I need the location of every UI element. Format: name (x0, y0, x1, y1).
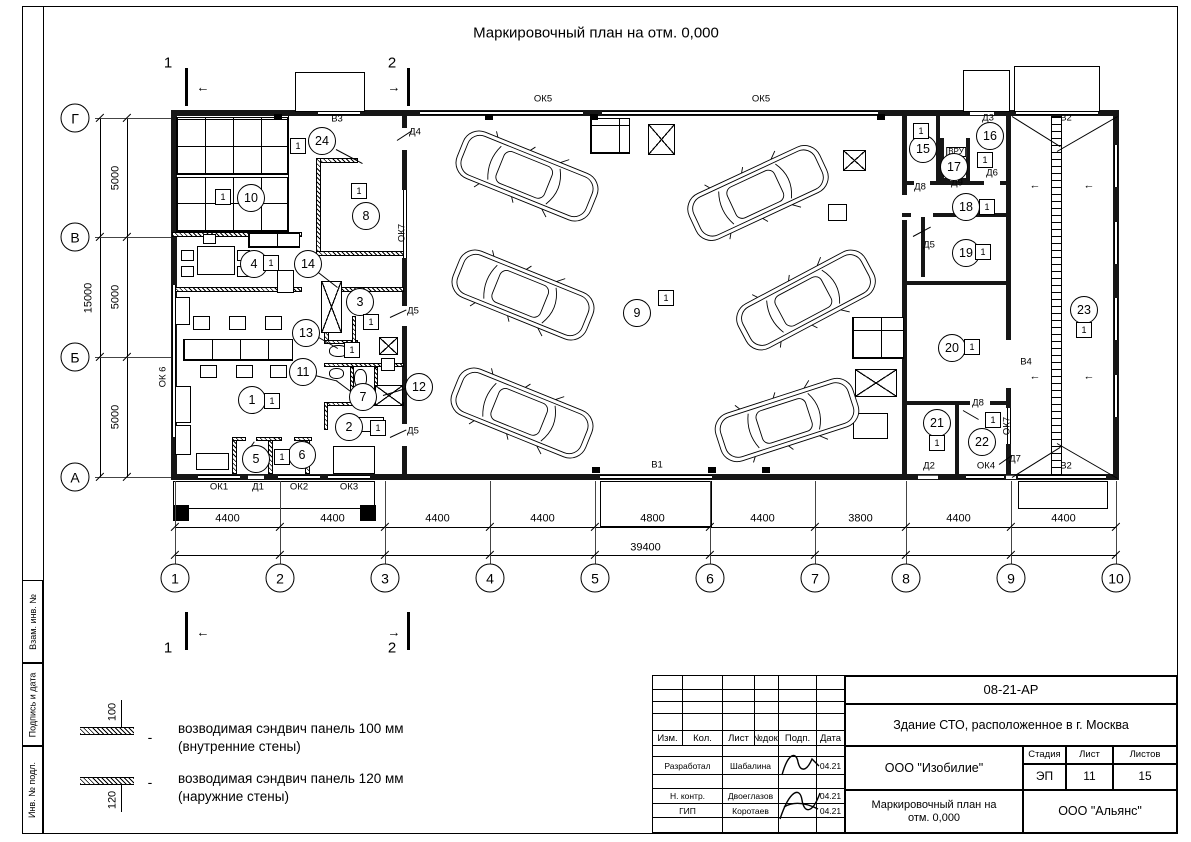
furniture-bar (592, 467, 600, 473)
leader-line (390, 309, 407, 318)
window-opening (600, 475, 712, 479)
furniture-box (963, 70, 1010, 112)
dimension-text: 4400 (320, 514, 344, 525)
axis-bubble: 10 (1102, 564, 1131, 593)
axis-bubble: 1 (161, 564, 190, 593)
area-tag: 1 (1076, 322, 1092, 338)
plan-label: Д8 (914, 182, 926, 192)
furniture-xbox (375, 385, 403, 406)
signature (778, 749, 822, 779)
window-opening (198, 475, 240, 479)
room-number: 14 (294, 250, 322, 278)
titleblock-cell (779, 702, 817, 714)
furniture-bar (877, 114, 885, 120)
furniture-xbox (648, 124, 675, 155)
room-number: 9 (623, 299, 651, 327)
wall (256, 437, 282, 441)
wall (1000, 181, 1011, 185)
door-opening (248, 475, 264, 479)
plan-label: 2 (388, 641, 396, 656)
titleblock-cell (653, 775, 723, 789)
area-tag: 1 (975, 244, 991, 260)
axis-bubble: А (61, 463, 90, 492)
titleblock-stage-value: ЭП (1023, 764, 1066, 790)
plan-label: ОК3 (340, 482, 358, 492)
furniture-box (1018, 481, 1108, 509)
plan-label: Д1 (252, 482, 264, 492)
plan-label: ОК7 (1002, 417, 1012, 435)
window-opening (1114, 375, 1118, 417)
titleblock-cell (653, 714, 683, 731)
legend-text-100-line2: (внутренние стены) (178, 740, 301, 754)
titleblock-cell (683, 714, 723, 731)
dim-line (127, 118, 128, 477)
room-number: 3 (346, 288, 374, 316)
wall (955, 405, 959, 474)
titleblock-cell (817, 690, 845, 702)
plan-label: ← (197, 626, 210, 639)
area-tag: 1 (929, 435, 945, 451)
titleblock-project: Здание СТО, расположенное в г. Москва (845, 704, 1177, 746)
furniture-bar (485, 114, 493, 120)
wall (402, 258, 407, 306)
axis-bubble: 3 (371, 564, 400, 593)
wall (316, 251, 406, 256)
furniture-bar (590, 114, 598, 120)
wall (402, 116, 407, 128)
plan-label: ← (197, 81, 210, 94)
titleblock-cell (723, 746, 779, 757)
axis-bubble: 6 (696, 564, 725, 593)
titleblock-cell (653, 702, 683, 714)
furniture-bar (407, 68, 410, 106)
furniture-box (196, 453, 229, 470)
area-tag: 1 (363, 314, 379, 330)
plan-label: Д8 (972, 398, 984, 408)
furniture-wc (329, 368, 344, 379)
titleblock-cell (723, 690, 755, 702)
wall (316, 158, 321, 256)
area-tag: 1 (215, 189, 231, 205)
dimension-text: 4400 (750, 514, 774, 525)
legend-wall-symbol-100 (80, 727, 134, 735)
dimension-text: 39400 (630, 543, 661, 554)
window-opening (1018, 475, 1106, 479)
furniture-bar (360, 505, 376, 521)
furniture-shelf (590, 118, 630, 154)
dimension-text: 4400 (215, 514, 239, 525)
car-top-view (445, 118, 608, 234)
room-number: 11 (289, 358, 317, 386)
plan-label: ← (1030, 372, 1041, 383)
furniture-box (265, 316, 282, 330)
area-tag: 1 (263, 255, 279, 271)
axis-bubble: 8 (892, 564, 921, 593)
wall (402, 150, 407, 190)
titleblock-cell (683, 676, 723, 690)
plan-label: ОК5 (752, 94, 770, 104)
grid-line (95, 357, 171, 358)
titleblock-role: ГИП (653, 804, 723, 818)
plan-label: → (388, 626, 401, 639)
titleblock-role: Разработал (653, 757, 723, 775)
axis-bubble: 7 (801, 564, 830, 593)
plan-label: ОК4 (977, 461, 995, 471)
titleblock-cell (817, 676, 845, 690)
furniture-box (197, 246, 235, 275)
axis-bubble: 9 (997, 564, 1026, 593)
furniture-bar (762, 467, 770, 473)
wall (902, 401, 970, 405)
wall (232, 437, 237, 474)
furniture-box (193, 316, 210, 330)
grid-line (95, 477, 171, 478)
room-number: 8 (352, 202, 380, 230)
plan-label: ОК7 (397, 224, 407, 242)
dimension-text: 4400 (946, 514, 970, 525)
room-number: 7 (349, 383, 377, 411)
titleblock-cell (723, 676, 755, 690)
room-number: 20 (938, 334, 966, 362)
titleblock-cell (653, 746, 723, 757)
room-number: 13 (292, 319, 320, 347)
titleblock-cell (779, 676, 817, 690)
titleblock-cell (779, 690, 817, 702)
wall (402, 326, 407, 424)
plan-label: Д2 (923, 461, 935, 471)
area-tag: 1 (658, 290, 674, 306)
titleblock-col-header: Лист (723, 731, 755, 746)
door-opening (918, 475, 938, 479)
car-top-view (677, 132, 840, 253)
plan-label: → (388, 81, 401, 94)
dimension-text: 4800 (640, 514, 664, 525)
furniture-bar (185, 68, 188, 106)
window-opening (1114, 145, 1118, 187)
room-number: 12 (405, 373, 433, 401)
dimension-text: 15000 (84, 282, 95, 313)
plan-label: Д7 (1009, 454, 1021, 464)
furniture-xbox (379, 337, 398, 355)
dim-line (175, 555, 1116, 556)
area-tag: 1 (274, 449, 290, 465)
furniture-box (181, 250, 194, 261)
furniture-box (277, 270, 294, 293)
titleblock-cell (755, 714, 779, 731)
titleblock-cell (723, 818, 779, 833)
plan-label: ОК1 (210, 482, 228, 492)
wall (324, 402, 328, 430)
room-number: 6 (288, 441, 316, 469)
area-tag: 1 (913, 123, 929, 139)
plan-label: Д5 (407, 426, 419, 436)
titleblock-cell (755, 676, 779, 690)
window-opening (328, 475, 370, 479)
furniture-box (381, 358, 395, 371)
furniture-box (181, 266, 194, 277)
titleblock-cell (653, 690, 683, 702)
furniture-bar (274, 114, 282, 120)
titleblock-sheet-label: Лист (1066, 746, 1113, 764)
plan-label: ОК5 (534, 94, 552, 104)
room-number: 5 (242, 445, 270, 473)
window-opening (966, 475, 1004, 479)
wall (402, 446, 407, 474)
dimension-text: 4400 (1051, 514, 1075, 525)
legend-text-100-line1: возводимая сэндвич панель 100 мм (178, 722, 404, 736)
room-number: 15 (909, 135, 937, 163)
wall (232, 437, 246, 441)
window-opening (420, 111, 583, 115)
titleblock-cell (817, 702, 845, 714)
grid-line (95, 118, 171, 119)
titleblock-cell (723, 714, 755, 731)
furniture-box (828, 204, 847, 221)
room-number: 1 (238, 386, 266, 414)
furniture-bar (185, 612, 188, 650)
dimension-text: 3800 (848, 514, 872, 525)
furniture-bar (407, 612, 410, 650)
wall (1006, 388, 1011, 408)
titleblock-cell (779, 714, 817, 731)
room-number: 16 (976, 122, 1004, 150)
signature (776, 783, 824, 825)
plan-label: В2 (1060, 461, 1072, 471)
area-tag: 1 (979, 199, 995, 215)
wall (902, 213, 911, 217)
area-tag: 1 (344, 342, 360, 358)
wall (990, 401, 1011, 405)
furniture-box (236, 365, 253, 378)
titleblock-cell (653, 818, 723, 833)
axis-bubble: 2 (266, 564, 295, 593)
titleblock-stage-label: Стадия (1023, 746, 1066, 764)
leader-line (963, 410, 979, 420)
titleblock-name: Двоеглазов (723, 789, 779, 804)
area-tag: 1 (264, 393, 280, 409)
titleblock-name: Коротаев (723, 804, 779, 818)
wall (902, 281, 1011, 285)
titleblock-col-header: №док. (755, 731, 779, 746)
dim-line (175, 527, 1116, 528)
dimension-text: 5000 (111, 165, 122, 189)
titleblock-cell (653, 676, 683, 690)
room-number: 10 (237, 184, 265, 212)
room-number: 2 (335, 413, 363, 441)
titleblock-cell (755, 690, 779, 702)
dimension-text: 5000 (111, 405, 122, 429)
titleblock-cell (723, 775, 779, 789)
titleblock-grid-top: Изм.Кол.Лист№док.Подп.Дата (653, 676, 845, 746)
furniture-xbox (843, 150, 866, 171)
area-tag: 1 (977, 152, 993, 168)
axis-bubble: В (61, 223, 90, 252)
grid-line (95, 237, 171, 238)
furniture-xbox (321, 281, 342, 333)
legend-wall-symbol-120 (80, 777, 134, 785)
axis-bubble: 5 (581, 564, 610, 593)
furniture-bar (708, 467, 716, 473)
car-top-view (440, 355, 603, 471)
furniture-box (175, 386, 191, 423)
plan-label: ← (1084, 181, 1095, 192)
plan-label: 1 (164, 56, 172, 71)
plan-label: ОК2 (290, 482, 308, 492)
window-opening (278, 475, 320, 479)
plan-label: Д4 (409, 127, 421, 137)
legend-dash: - (148, 729, 153, 745)
plan-label: Д6 (986, 168, 998, 178)
room-number: 18 (952, 193, 980, 221)
titleblock-company: ООО "Изобилие" (845, 746, 1023, 790)
titleblock-cell (723, 702, 755, 714)
legend-text-120-line2: (наружние стены) (178, 790, 289, 804)
wall (288, 116, 289, 232)
area-tag: 1 (370, 420, 386, 436)
plan-label: ← (1030, 181, 1041, 192)
wall (902, 181, 914, 185)
titleblock-drawing-name: Маркировочный план на отм. 0,000 (845, 790, 1023, 833)
room-number: 22 (968, 428, 996, 456)
furniture-box (270, 365, 287, 378)
titleblock-col-header: Кол. (683, 731, 723, 746)
axis-bubble: 4 (476, 564, 505, 593)
area-tag: 1 (290, 138, 306, 154)
plan-label: Д5 (407, 306, 419, 316)
titleblock-name: Шабалина (723, 757, 779, 775)
furniture-box (295, 72, 365, 112)
axis-bubble: Г (61, 104, 90, 133)
plan-label: В2 (1060, 113, 1072, 123)
plan-label: В4 (1020, 357, 1032, 367)
dimension-text: 4400 (530, 514, 554, 525)
room-number: 21 (923, 409, 951, 437)
furniture-ladder (1051, 116, 1062, 476)
window-opening (1114, 222, 1118, 264)
legend-dim-100: 100 (108, 703, 119, 721)
legend-dim-120: 120 (108, 791, 119, 809)
plan-label: ← (1084, 372, 1095, 383)
furniture-box (229, 316, 246, 330)
room-number: 17 (940, 153, 968, 181)
car-top-view (441, 237, 604, 353)
furniture-box (175, 297, 190, 325)
furniture-box (333, 446, 375, 474)
wall (352, 316, 356, 344)
leader-line (390, 429, 407, 438)
furniture-box (1014, 66, 1100, 112)
furniture-shelf (248, 233, 300, 248)
plan-label: 2 (388, 56, 396, 71)
furniture-box (175, 425, 191, 455)
legend-text-120-line1: возводимая сэндвич панель 120 мм (178, 772, 404, 786)
furniture-box (200, 365, 217, 378)
furniture-box (203, 234, 216, 244)
plan-label: В1 (651, 460, 663, 470)
dim-line (100, 118, 101, 477)
legend-extension-line (121, 785, 122, 812)
furniture-shelf (852, 317, 904, 359)
area-tag: 1 (985, 412, 1001, 428)
legend-extension-line (121, 700, 122, 728)
furniture-shelf (176, 177, 288, 232)
legend-dash: - (148, 774, 153, 790)
dimension-text: 4400 (425, 514, 449, 525)
titleblock-col-header: Дата (817, 731, 845, 746)
furniture-shelf (183, 339, 293, 361)
titleblock-col-header: Подп. (779, 731, 817, 746)
plan-label: Д5 (923, 240, 935, 250)
titleblock-sheets-label: Листов (1113, 746, 1177, 764)
room-number: 23 (1070, 296, 1098, 324)
titleblock-doc-number: 08-21-АР (845, 676, 1177, 704)
area-tag: 1 (964, 339, 980, 355)
titleblock-cell (817, 714, 845, 731)
axis-bubble: Б (61, 343, 90, 372)
plan-label: В3 (331, 114, 343, 124)
titleblock-cell (683, 702, 723, 714)
furniture-xbox (855, 369, 897, 397)
titleblock-col-header: Изм. (653, 731, 683, 746)
wall (1006, 116, 1011, 340)
titleblock-sheets-value: 15 (1113, 764, 1177, 790)
dimension-text: 5000 (111, 285, 122, 309)
titleblock-sheet-value: 11 (1066, 764, 1113, 790)
plan-label: 1 (164, 641, 172, 656)
area-tag: 1 (351, 183, 367, 199)
plan-label: ОК 6 (158, 367, 168, 388)
car-top-view (706, 366, 868, 473)
wall (930, 181, 940, 185)
furniture-shelf (176, 117, 288, 175)
titleblock-role: Н. контр. (653, 789, 723, 804)
titleblock-cell (683, 690, 723, 702)
room-number: 24 (308, 127, 336, 155)
titleblock-cell (755, 702, 779, 714)
window-opening (1114, 298, 1118, 340)
titleblock-contractor: ООО "Альянс" (1023, 790, 1177, 833)
window-opening (602, 111, 878, 115)
